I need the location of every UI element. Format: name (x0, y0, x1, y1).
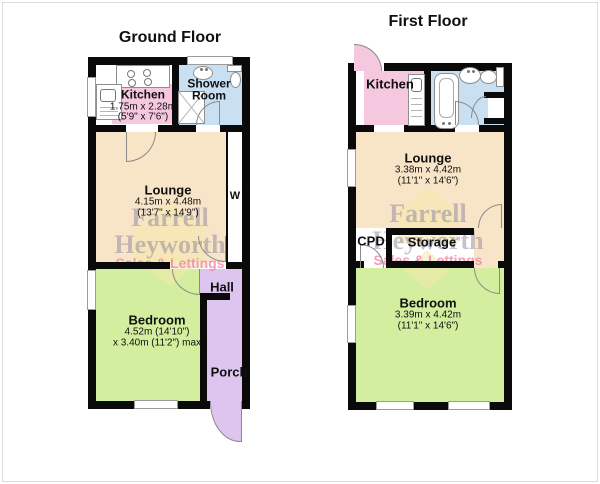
ff-lounge-label: Lounge (405, 151, 452, 166)
wall-segment (158, 125, 196, 132)
gf-porch-label: Porch (211, 365, 248, 380)
gf-porch-floor (207, 293, 242, 401)
floorplan-canvas: Ground Floor Farrell Heyworth Sales & Le… (0, 0, 600, 484)
ff-bedroom-label: Bedroom (399, 296, 456, 311)
wall-segment (220, 125, 242, 132)
wall-segment (384, 63, 512, 71)
ff-cpd-label: CPD (357, 234, 384, 249)
gf-kitchen-dims-ft: (5'9" x 7'6") (118, 112, 168, 123)
toilet-icon (230, 72, 241, 88)
ff-bedroom-floor (356, 268, 504, 402)
gf-shower-room-label-2: Room (192, 90, 226, 103)
window (448, 401, 490, 410)
wall-segment (242, 57, 250, 409)
window (87, 77, 96, 117)
gf-wardrobe-label: W (230, 190, 240, 202)
wall-segment (392, 261, 474, 268)
gf-bedroom-dims-2: x 3.40m (11'2") max (113, 338, 201, 349)
window (87, 270, 96, 310)
wall-segment (226, 262, 242, 269)
ff-lounge-dims-m: 3.38m x 4.42m (395, 165, 461, 176)
wall-segment (200, 293, 207, 401)
toilet-cistern-icon (496, 67, 504, 87)
wall-segment (424, 71, 431, 125)
ff-watermark-line1: Farrell (389, 199, 466, 229)
ff-bedroom-dims-m: 3.39m x 4.42m (395, 310, 461, 321)
wall-segment (348, 63, 356, 410)
window (134, 400, 178, 409)
basin-icon (459, 67, 481, 84)
ff-lounge-dims-ft: (11'1" x 14'6") (398, 176, 459, 187)
gf-bedroom-label: Bedroom (128, 313, 185, 328)
wall-segment (484, 92, 504, 98)
wall-segment (226, 132, 228, 262)
ff-storage-label: Storage (408, 235, 456, 250)
ff-kitchen-label: Kitchen (366, 77, 414, 92)
window (347, 305, 356, 343)
window (187, 56, 233, 65)
wall-segment (504, 63, 512, 410)
hob-icon (116, 65, 170, 88)
wall-segment (479, 125, 504, 132)
wall-segment (484, 118, 504, 124)
wall-segment (96, 262, 170, 269)
ground-floor-title: Ground Floor (119, 29, 221, 47)
wall-segment (242, 401, 250, 409)
wall-segment (498, 261, 504, 268)
gf-hall-label: Hall (210, 280, 234, 295)
wall-segment (356, 125, 374, 132)
gf-kitchen-label: Kitchen (121, 89, 165, 102)
window (376, 401, 414, 410)
wall-segment (96, 125, 126, 132)
gf-lounge-dims-m: 4.15m x 4.48m (135, 197, 201, 208)
ff-bedroom-dims-ft: (11'1" x 14'6") (398, 321, 459, 332)
gf-bedroom-dims-1: 4.52m (14'10") (125, 327, 190, 338)
toilet-icon (480, 70, 497, 84)
first-floor-title: First Floor (388, 13, 467, 31)
toilet-cistern-icon (227, 65, 242, 72)
gf-lounge-dims-ft: (13'7" x 14'9") (137, 208, 199, 219)
gf-lounge-label: Lounge (145, 183, 192, 198)
window (347, 149, 356, 187)
